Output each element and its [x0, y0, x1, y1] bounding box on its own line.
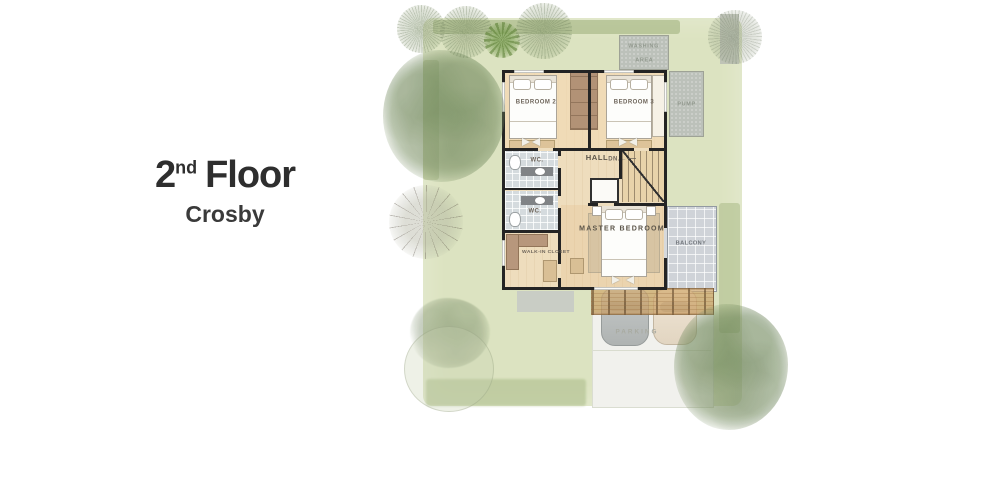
window-marker	[604, 70, 634, 73]
balcony-label: BALCONY	[663, 239, 719, 245]
blanket-fold	[510, 121, 556, 122]
nightstand-icon	[592, 206, 602, 216]
pillow-icon	[605, 209, 623, 220]
door-opening	[634, 148, 649, 151]
site-plan: WASHING AREA PUMP	[0, 0, 1000, 500]
pump-label: PUMP	[677, 99, 695, 108]
toilet-icon	[509, 212, 521, 227]
nightstand-icon	[646, 206, 656, 216]
door-opening	[558, 264, 561, 278]
walk-in-closet-label: WALK-IN CLOSET	[521, 249, 571, 255]
bed-icon	[606, 75, 652, 139]
tree-icon	[397, 5, 445, 53]
bedroom2-label: BEDROOM 2	[506, 98, 566, 105]
window-marker	[664, 82, 667, 112]
carport-pergola	[591, 288, 714, 315]
wall	[558, 233, 561, 290]
wall	[502, 287, 667, 290]
bare-tree-icon	[389, 185, 463, 259]
shrub-icon	[484, 22, 520, 58]
bedroom3-label: BEDROOM 3	[604, 98, 664, 105]
sink-icon	[535, 197, 545, 204]
tree-icon	[708, 10, 762, 64]
tree-icon	[404, 326, 494, 412]
pillow-icon	[625, 209, 643, 220]
blanket-fold	[607, 121, 651, 122]
wall	[588, 70, 591, 150]
balcony-area	[667, 206, 717, 292]
closet-island	[543, 260, 557, 282]
down-arrow-icon: ←	[621, 155, 636, 162]
floorplan-page: 2ndFloor Crosby WASHING AREA PUMP	[0, 0, 1000, 500]
stairs-down-label: DN. ←	[608, 155, 646, 162]
wardrobe-icon	[570, 72, 598, 130]
stair-landing	[590, 178, 619, 203]
washing-area-label-line2: AREA	[635, 55, 653, 64]
wc-upper-label: WC.	[507, 156, 567, 163]
down-text: DN.	[608, 155, 620, 162]
chair-icon	[522, 138, 540, 146]
master-bedroom-label: MASTER BEDROOM	[569, 225, 675, 233]
wc-lower-label: WC.	[505, 207, 565, 214]
concrete-slab	[517, 291, 574, 312]
tree-icon	[516, 3, 572, 59]
master-bed-icon	[601, 205, 647, 277]
cabinet-icon	[570, 258, 584, 274]
wall	[505, 188, 558, 190]
washing-area-label-line1: WASHING	[629, 41, 660, 50]
closet-counter	[506, 234, 519, 270]
pillow-icon	[630, 79, 648, 90]
washing-area: WASHING AREA	[619, 35, 669, 70]
chair-icon	[619, 138, 637, 146]
blanket-fold	[602, 259, 646, 260]
pump-area: PUMP	[669, 71, 704, 137]
pillow-icon	[610, 79, 628, 90]
bench-icon	[612, 276, 634, 284]
parking-label: PARKING	[589, 328, 685, 335]
pillow-icon	[534, 79, 552, 90]
sink-icon	[535, 168, 545, 175]
wall	[505, 230, 561, 233]
door-opening	[598, 203, 614, 206]
window-marker	[514, 70, 544, 73]
pillow-icon	[513, 79, 531, 90]
window-marker	[594, 287, 638, 290]
window-marker	[502, 240, 505, 266]
door-opening	[538, 148, 553, 151]
tree-icon	[674, 304, 788, 430]
bed-icon	[509, 75, 557, 139]
